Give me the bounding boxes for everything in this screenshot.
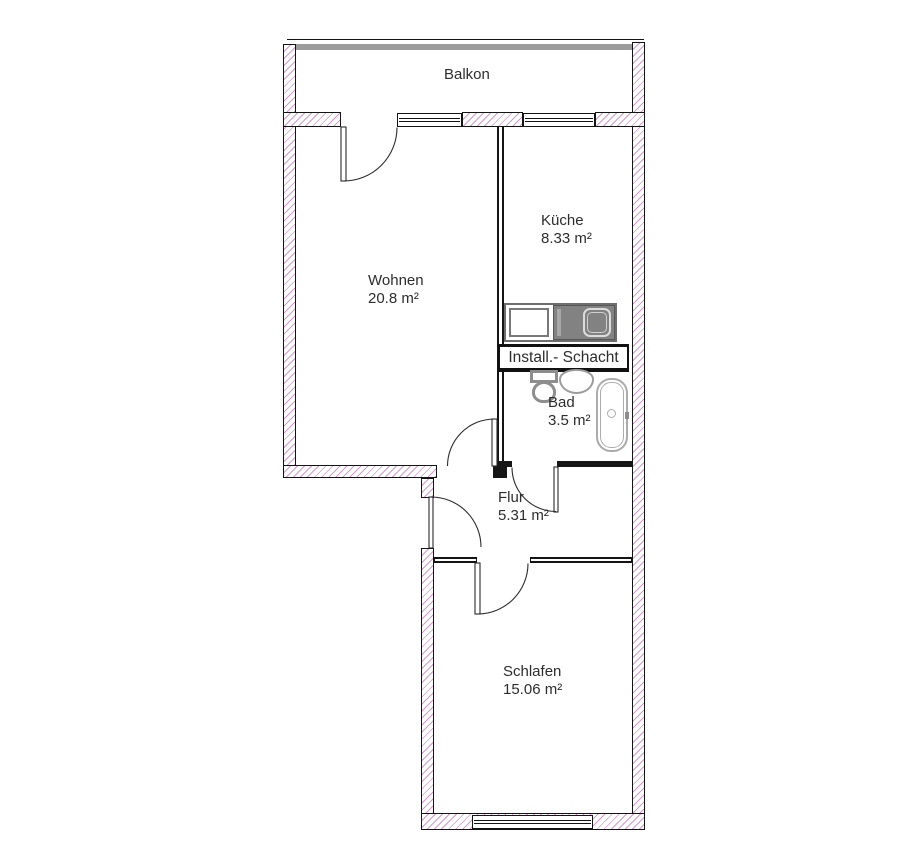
room-label-kueche: Küche 8.33 m² [541, 212, 592, 248]
wall-balcony-bottom-mid [462, 112, 523, 127]
room-label-flur: Flur 5.31 m² [498, 489, 549, 525]
schlafen-name: Schlafen [503, 663, 562, 681]
wohnen-name: Wohnen [368, 272, 424, 290]
room-label-wohnen: Wohnen 20.8 m² [368, 272, 424, 308]
kitchen-sink-basin-inner [587, 312, 607, 333]
door-leaf-bad [554, 467, 558, 512]
wall-balcony-bottom-right [595, 112, 645, 127]
bad-name: Bad [548, 394, 591, 412]
door-arc-schlafen [478, 564, 529, 615]
floor-plan: Install.- Schacht [0, 0, 917, 850]
kueche-name: Küche [541, 212, 592, 230]
wall-wohnen-bottom [283, 465, 437, 478]
wohnen-area: 20.8 m² [368, 290, 424, 308]
bathtub-drain-icon [607, 409, 616, 418]
door-swings [0, 0, 917, 850]
wall-flur-schlafen-right [530, 557, 632, 563]
wall-left-lower [421, 548, 434, 830]
flur-name: Flur [498, 489, 549, 507]
balcony-railing [296, 44, 632, 50]
room-label-schlafen: Schlafen 15.06 m² [503, 663, 562, 699]
wall-bad-bottom-right [557, 461, 632, 467]
door-leaf-schlafen [475, 563, 480, 614]
balkon-name: Balkon [444, 66, 490, 84]
room-label-balkon: Balkon [444, 66, 490, 84]
wall-wohnen-kueche [497, 127, 504, 461]
washbasin [559, 369, 594, 394]
wall-balcony-bottom-left [283, 112, 341, 127]
wall-flur-schlafen-left [434, 557, 477, 563]
window-schlafen [472, 815, 593, 829]
bad-area: 3.5 m² [548, 412, 591, 430]
room-label-bad: Bad 3.5 m² [548, 394, 591, 430]
door-leaf-balkon [341, 127, 346, 181]
wall-left [283, 44, 296, 478]
bathtub-handle [625, 412, 629, 419]
window-wohnen [397, 113, 462, 127]
window-kueche [523, 113, 595, 127]
flur-area: 5.31 m² [498, 507, 549, 525]
wall-entry-stub [421, 478, 434, 498]
kitchen-sink-drainer [557, 309, 561, 336]
kitchen-stove [509, 308, 549, 337]
wall-bad-bottom-left [497, 461, 512, 467]
kueche-area: 8.33 m² [541, 230, 592, 248]
install-schacht-label: Install.- Schacht [508, 349, 618, 367]
door-arc-wohnen [448, 419, 495, 466]
install-schacht-box: Install.- Schacht [498, 344, 629, 372]
door-arc-entrance [431, 497, 481, 547]
balcony-edge-line [287, 39, 644, 40]
door-arc-balkon [344, 128, 398, 182]
door-leaf-entrance [429, 497, 433, 548]
wall-right [632, 42, 645, 830]
schlafen-area: 15.06 m² [503, 681, 562, 699]
